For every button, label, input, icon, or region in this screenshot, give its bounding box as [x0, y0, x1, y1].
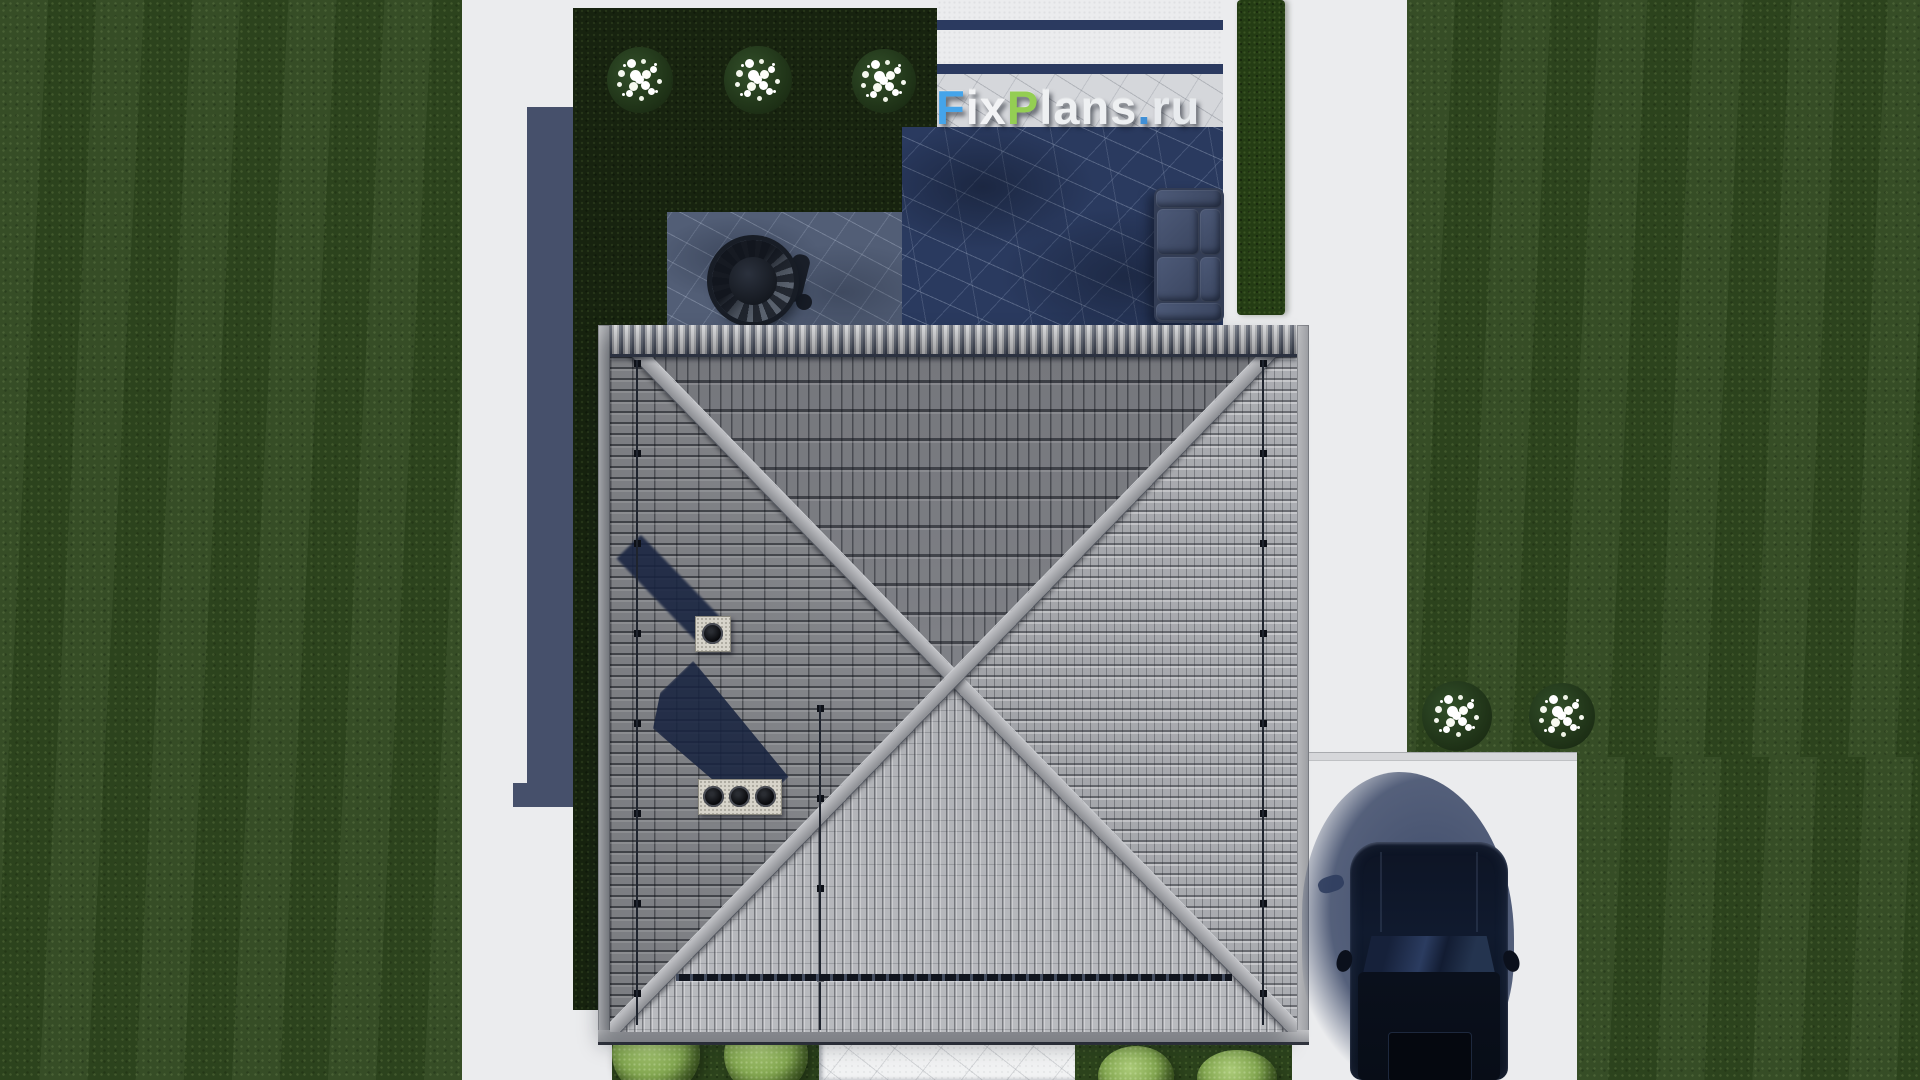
sofa-seat-cushion	[1157, 209, 1199, 255]
car-hood-crease	[1380, 852, 1382, 932]
watermark: FixPlans.ru	[936, 80, 1200, 135]
watermark-seg-f: F	[936, 81, 966, 134]
sofa-back-cushion	[1200, 257, 1221, 302]
flower-bush	[724, 46, 792, 114]
watermark-seg-p: P	[1007, 81, 1039, 134]
watermark-seg-ru: ru	[1151, 81, 1200, 134]
lawn-right-upper	[1407, 0, 1920, 760]
flue-hole	[729, 786, 750, 807]
flower-bush	[1422, 681, 1492, 751]
sofa-seat-cushion	[1157, 257, 1199, 302]
watermark-seg-ix: ix	[966, 81, 1007, 134]
flower-bush	[1529, 683, 1595, 749]
sofa-armrest-bottom	[1156, 303, 1222, 321]
pool-lane-stripe	[937, 20, 1223, 30]
flower-bush	[607, 47, 673, 113]
watermark-seg-dot: .	[1137, 81, 1151, 134]
driveway-curb	[1300, 753, 1577, 760]
sofa-back-cushion	[1200, 209, 1221, 255]
car-sunroof	[1388, 1032, 1472, 1080]
egg-chair-cushion	[729, 257, 777, 305]
roof-wire-west	[634, 360, 641, 1025]
roof-fascia-south	[598, 1030, 1309, 1045]
roof-wire-east	[1260, 360, 1267, 1025]
chimney-triple-flue	[698, 779, 782, 815]
wall-shadow	[527, 107, 573, 783]
aerial-render: FixPlans.ru	[0, 0, 1920, 1080]
outdoor-sofa	[1154, 188, 1224, 323]
snow-guard	[676, 974, 1232, 981]
lawn-left	[0, 0, 462, 1080]
chimney-single-flue	[695, 616, 731, 652]
egg-chair-base	[796, 294, 812, 310]
flue-hole	[702, 623, 723, 644]
car	[1350, 842, 1508, 1080]
flue-hole	[703, 786, 724, 807]
hedge	[1237, 0, 1285, 315]
sofa-armrest-top	[1156, 190, 1222, 208]
wall-shadow-foot	[513, 783, 573, 807]
roof-fascia-west	[598, 325, 610, 1035]
car-hood-crease	[1476, 852, 1478, 932]
watermark-seg-lans: lans	[1039, 81, 1137, 134]
pool-lane-stripe	[937, 64, 1223, 74]
roof-ridge-cap-row	[610, 325, 1297, 357]
flue-hole	[755, 786, 776, 807]
roof	[610, 325, 1297, 1032]
egg-chair-seat	[712, 240, 794, 322]
flower-bush	[852, 49, 916, 113]
hanging-egg-chair	[712, 236, 816, 328]
lawn-right-lower	[1577, 757, 1920, 1080]
roof-wire-south	[817, 705, 824, 1030]
